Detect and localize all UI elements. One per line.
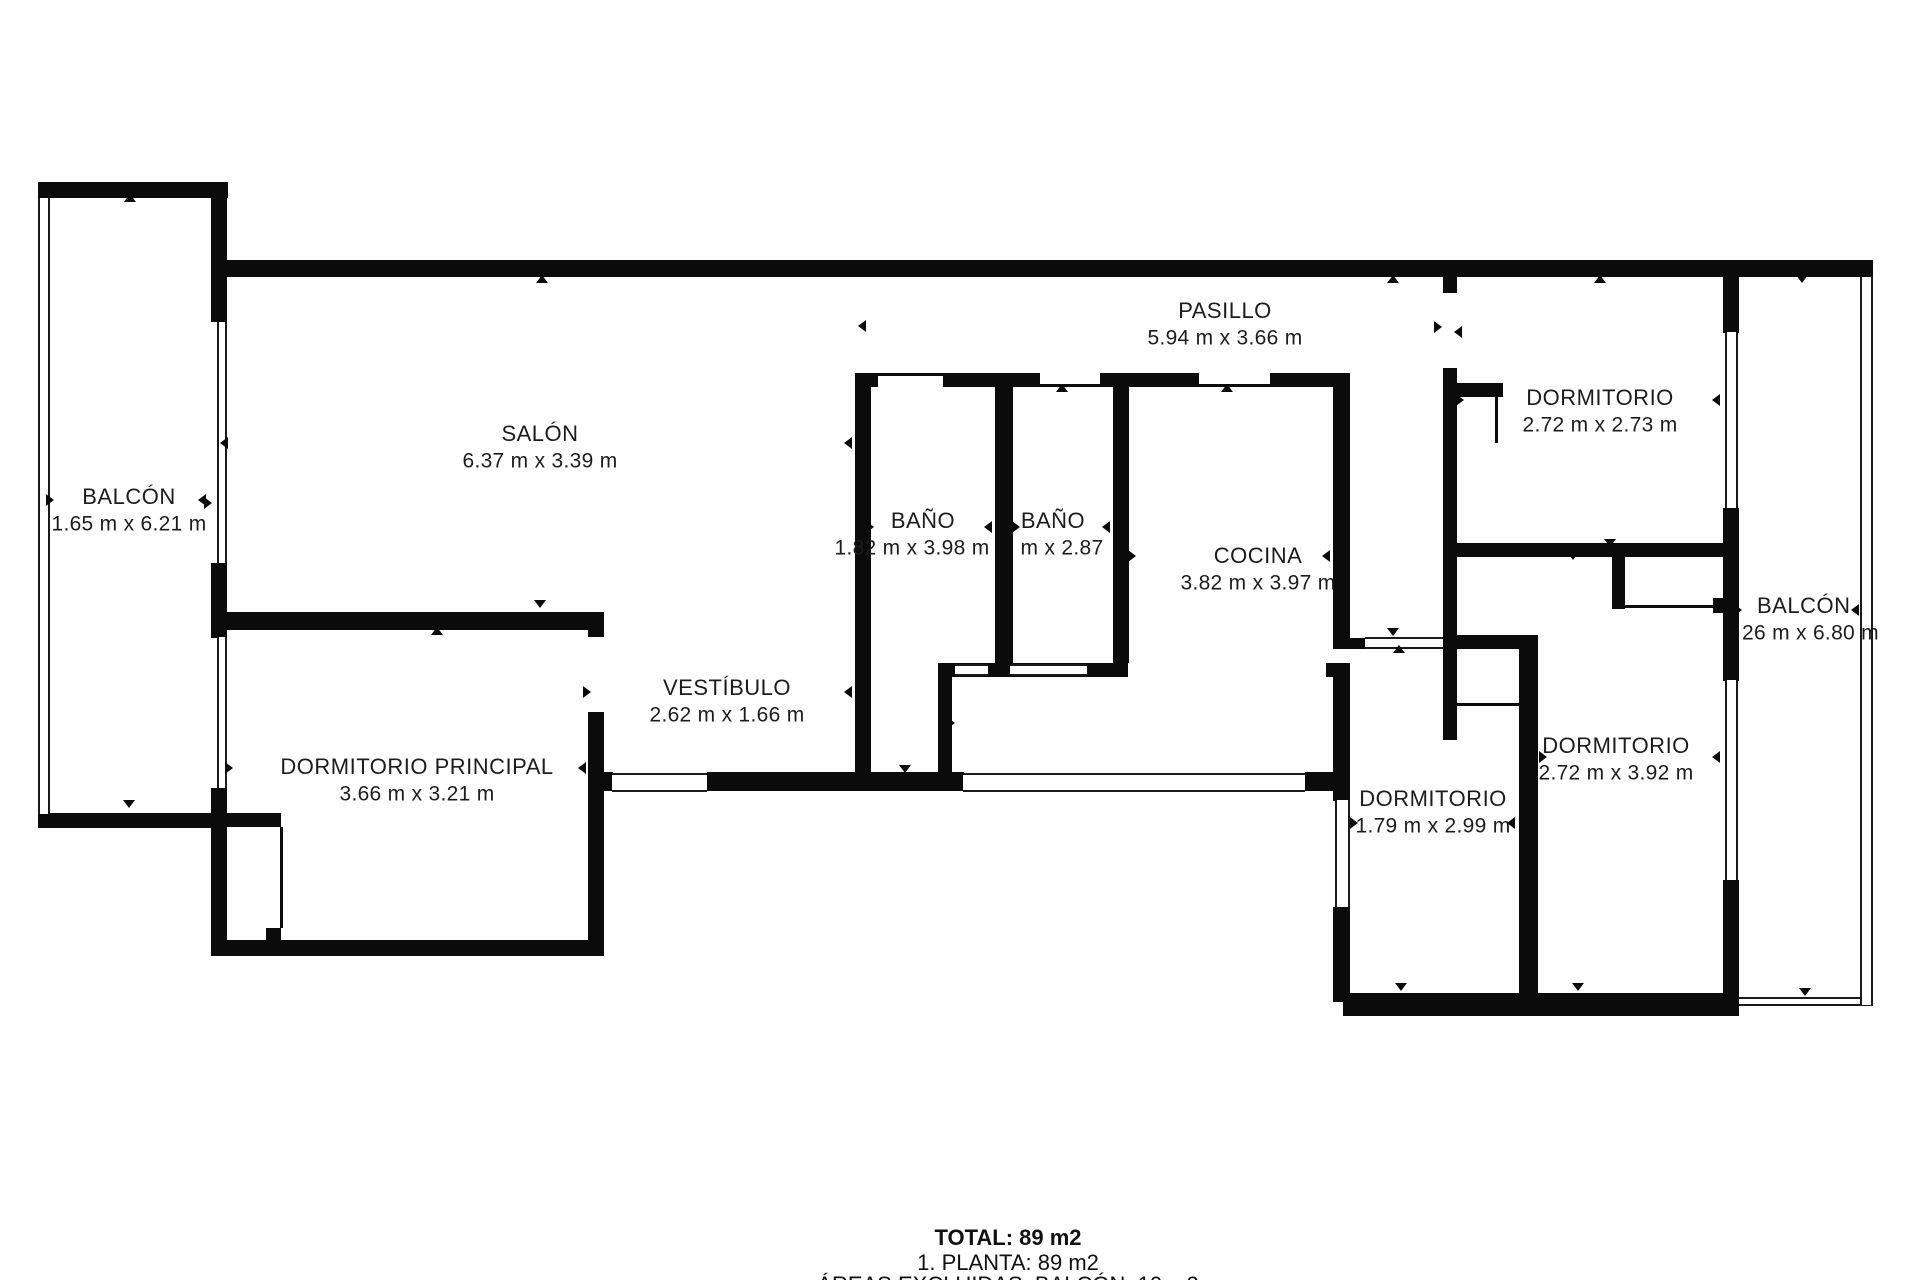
tick-marker-up bbox=[1056, 384, 1068, 392]
window bbox=[38, 198, 50, 814]
tick-marker-right bbox=[1434, 321, 1442, 333]
tick-marker-up bbox=[431, 627, 443, 635]
wall-segment bbox=[855, 373, 878, 387]
tick-marker-right bbox=[947, 717, 955, 729]
wall-segment bbox=[1305, 772, 1335, 791]
summary-areas-excluidas: ÁREAS EXCLUIDAS: BALCÓN: 10 m2 bbox=[0, 1273, 1920, 1280]
wall-segment bbox=[855, 373, 871, 773]
room-label-bano-1: BAÑO bbox=[891, 510, 955, 532]
wall-segment bbox=[227, 260, 1873, 277]
wall-segment bbox=[1113, 387, 1129, 663]
window bbox=[1725, 332, 1738, 508]
tick-marker-down bbox=[1567, 552, 1579, 560]
tick-marker-left bbox=[1712, 751, 1720, 763]
tick-marker-left bbox=[578, 762, 586, 774]
room-dims-salon: 6.37 m x 3.39 m bbox=[462, 451, 617, 472]
tick-marker-up bbox=[124, 194, 136, 202]
wall-segment bbox=[1723, 508, 1739, 681]
wall-segment bbox=[1348, 638, 1366, 649]
room-dims-pasillo: 5.94 m x 3.66 m bbox=[1147, 328, 1302, 349]
tick-marker-down bbox=[899, 765, 911, 773]
wall-segment bbox=[1333, 373, 1350, 649]
wall-segment bbox=[211, 182, 227, 322]
thin-line bbox=[1625, 605, 1713, 608]
window bbox=[963, 773, 1305, 792]
room-dims-balcon-der: 26 m x 6.80 m bbox=[1742, 623, 1879, 644]
summary-total: TOTAL: 89 m2 bbox=[0, 1226, 1920, 1250]
thin-line bbox=[1495, 397, 1498, 443]
thin-line bbox=[1457, 703, 1519, 706]
wall-segment bbox=[588, 612, 604, 637]
wall-segment bbox=[1519, 635, 1538, 993]
room-label-balcon-izq: BALCÓN bbox=[82, 486, 175, 508]
room-label-dormitorio-superior: DORMITORIO bbox=[1526, 387, 1674, 409]
tick-marker-right bbox=[225, 762, 233, 774]
tick-marker-right bbox=[46, 494, 54, 506]
thin-line bbox=[877, 373, 943, 376]
wall-segment bbox=[1100, 373, 1199, 387]
room-dims-bano-1: 1.82 m x 3.98 m bbox=[834, 538, 989, 559]
tick-marker-left bbox=[1102, 521, 1110, 533]
wall-segment bbox=[1270, 373, 1341, 387]
room-dims-dormitorio-principal: 3.66 m x 3.21 m bbox=[339, 784, 494, 805]
tick-marker-up bbox=[1221, 384, 1233, 392]
tick-marker-up bbox=[1393, 645, 1405, 653]
wall-segment bbox=[1612, 557, 1625, 609]
room-dims-balcon-izq: 1.65 m x 6.21 m bbox=[51, 514, 206, 535]
tick-marker-down bbox=[1799, 988, 1811, 996]
room-label-pasillo: PASILLO bbox=[1178, 300, 1272, 322]
wall-segment bbox=[1723, 277, 1739, 333]
window bbox=[1725, 680, 1738, 880]
room-label-dormitorio-2: DORMITORIO bbox=[1359, 788, 1507, 810]
tick-marker-left bbox=[1454, 326, 1462, 338]
tick-marker-down bbox=[1395, 983, 1407, 991]
window bbox=[1010, 664, 1087, 676]
wall-segment bbox=[1326, 663, 1334, 677]
room-label-balcon-der: BALCÓN bbox=[1757, 595, 1850, 617]
tick-marker-right bbox=[866, 521, 874, 533]
tick-marker-left bbox=[1851, 604, 1859, 616]
room-label-salon: SALÓN bbox=[501, 423, 578, 445]
tick-marker-right bbox=[1012, 521, 1020, 533]
wall-segment bbox=[995, 387, 1013, 663]
wall-segment bbox=[1457, 543, 1727, 557]
room-dims-dormitorio-superior: 2.72 m x 2.73 m bbox=[1522, 415, 1677, 436]
tick-marker-left bbox=[984, 521, 992, 533]
room-label-cocina: COCINA bbox=[1214, 545, 1303, 567]
tick-marker-left bbox=[844, 437, 852, 449]
thin-line bbox=[280, 827, 283, 928]
wall-segment bbox=[1333, 907, 1350, 1002]
thin-line bbox=[1198, 384, 1270, 387]
tick-marker-left bbox=[220, 437, 228, 449]
tick-marker-down bbox=[534, 600, 546, 608]
floorplan-page: BALCÓN1.65 m x 6.21 mSALÓN6.37 m x 3.39 … bbox=[0, 0, 1920, 1280]
tick-marker-down bbox=[1572, 983, 1584, 991]
tick-marker-right bbox=[583, 686, 591, 698]
tick-marker-down bbox=[1796, 275, 1808, 283]
wall-segment bbox=[266, 928, 281, 942]
wall-segment bbox=[588, 712, 604, 956]
room-dims-bano-2: m x 2.87 bbox=[1021, 538, 1104, 559]
window bbox=[612, 773, 707, 792]
tick-marker-right bbox=[1734, 604, 1742, 616]
tick-marker-left bbox=[1712, 394, 1720, 406]
wall-segment bbox=[227, 612, 601, 630]
tick-marker-left bbox=[844, 686, 852, 698]
room-dims-dormitorio-3: 2.72 m x 3.92 m bbox=[1538, 763, 1693, 784]
tick-marker-down bbox=[123, 800, 135, 808]
wall-segment bbox=[211, 563, 227, 638]
tick-marker-up bbox=[536, 275, 548, 283]
room-label-dormitorio-principal: DORMITORIO PRINCIPAL bbox=[280, 756, 553, 778]
wall-segment bbox=[38, 813, 214, 828]
wall-segment bbox=[1443, 368, 1457, 740]
room-label-dormitorio-3: DORMITORIO bbox=[1542, 735, 1690, 757]
wall-segment bbox=[211, 940, 604, 956]
tick-marker-down bbox=[1387, 628, 1399, 636]
tick-marker-up bbox=[1594, 275, 1606, 283]
window bbox=[955, 664, 988, 676]
tick-marker-right bbox=[1456, 394, 1464, 406]
tick-marker-left bbox=[1322, 550, 1330, 562]
window bbox=[1739, 997, 1873, 1006]
tick-marker-right bbox=[204, 497, 212, 509]
room-label-vestibulo: VESTÍBULO bbox=[663, 677, 791, 699]
room-dims-cocina: 3.82 m x 3.97 m bbox=[1180, 573, 1335, 594]
window bbox=[1335, 800, 1350, 907]
room-dims-vestibulo: 2.62 m x 1.66 m bbox=[649, 705, 804, 726]
wall-segment bbox=[943, 373, 1040, 387]
wall-segment bbox=[707, 772, 964, 791]
tick-marker-left bbox=[858, 320, 866, 332]
room-dims-dormitorio-2: 1.79 m x 2.99 m bbox=[1355, 816, 1510, 837]
wall-segment bbox=[227, 813, 281, 827]
wall-segment bbox=[1343, 993, 1727, 1016]
tick-marker-down bbox=[1604, 539, 1616, 547]
wall-segment bbox=[1443, 277, 1457, 293]
tick-marker-right bbox=[1128, 550, 1136, 562]
room-label-bano-2: BAÑO bbox=[1021, 510, 1085, 532]
thin-line bbox=[1040, 384, 1100, 387]
wall-segment bbox=[1333, 663, 1350, 801]
tick-marker-up bbox=[1387, 275, 1399, 283]
